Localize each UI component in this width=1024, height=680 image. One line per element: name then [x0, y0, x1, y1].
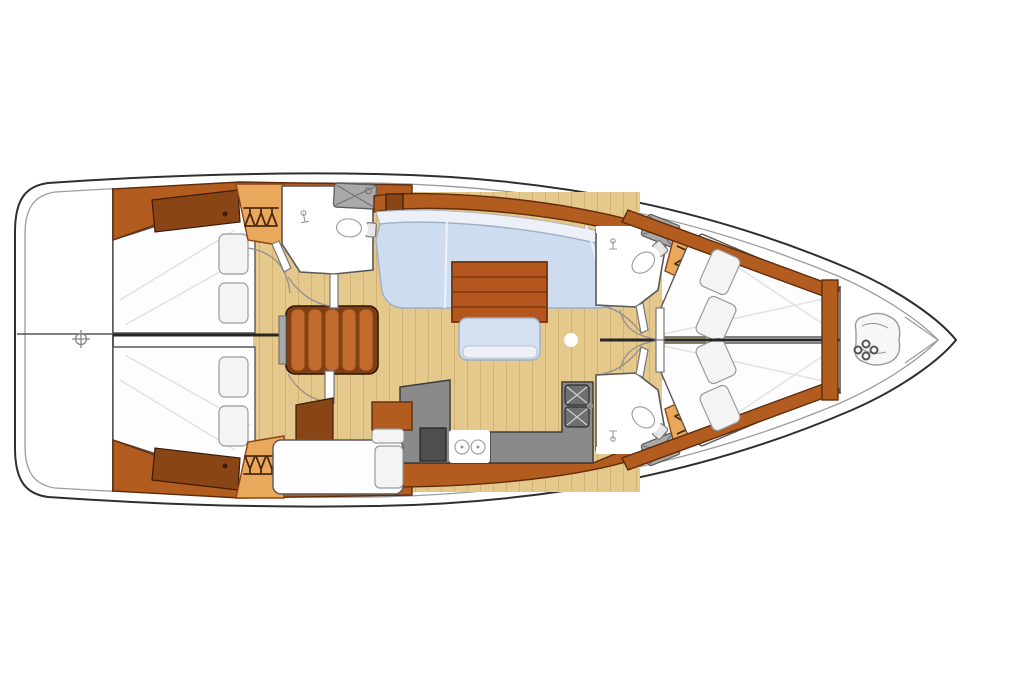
mast-post-icon — [564, 333, 578, 347]
locker-handle — [223, 464, 228, 469]
stove — [449, 430, 490, 463]
pillow — [219, 234, 248, 274]
pillow — [219, 357, 248, 397]
pillow — [219, 283, 248, 323]
head-shelf — [596, 226, 640, 233]
sink — [598, 421, 629, 444]
saloon-table — [452, 262, 547, 322]
stair-step — [291, 309, 305, 371]
head-shelf — [287, 195, 325, 204]
stair-step — [308, 309, 322, 371]
sink — [598, 236, 629, 259]
head-shelf — [596, 447, 640, 454]
wood-strip — [372, 402, 412, 430]
floorplan-svg — [0, 0, 1024, 680]
fridge — [420, 428, 446, 461]
burner-center — [461, 446, 464, 449]
stair-step — [325, 309, 339, 371]
companionway-stairs — [279, 306, 378, 374]
pillow — [219, 406, 248, 446]
yacht-floorplan-canvas — [0, 0, 1024, 680]
anchor-locker — [855, 313, 900, 365]
stair-side-step — [279, 316, 286, 364]
locker-handle — [223, 212, 228, 217]
seat-cushion — [372, 429, 404, 443]
burner-center — [477, 446, 480, 449]
stair-step — [359, 309, 373, 371]
saloon-bench — [459, 318, 540, 360]
shower-grate-icon — [333, 183, 376, 209]
fwd-bulkhead-trim — [822, 280, 838, 400]
seat-cushion — [375, 446, 403, 488]
stair-step — [342, 309, 356, 371]
